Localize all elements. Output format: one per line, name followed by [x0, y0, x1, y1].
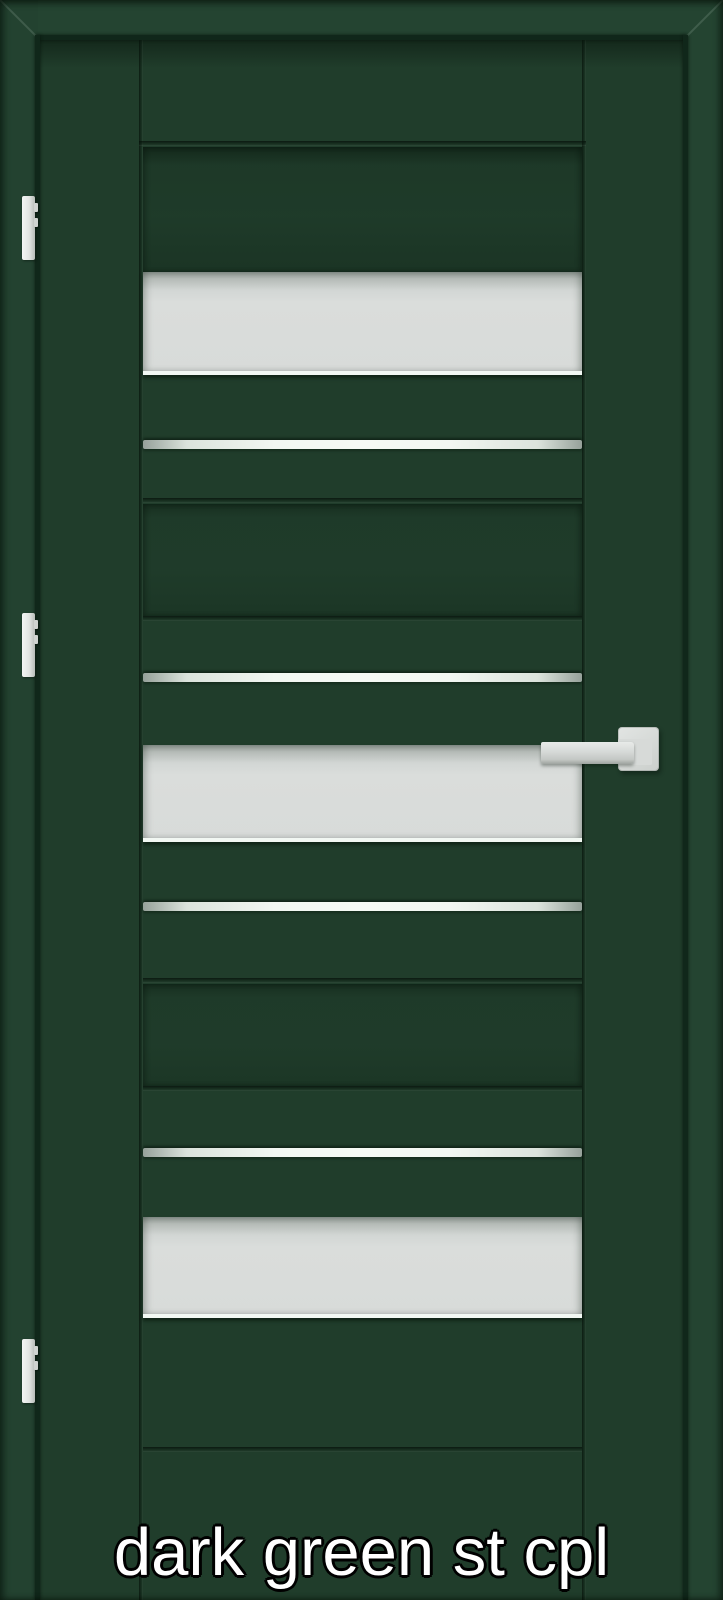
hinge-knuckle: [34, 218, 38, 227]
hinge-top: [22, 196, 35, 260]
door-frame-right: [685, 0, 723, 1600]
recessed-panel-top: [143, 147, 582, 272]
door-leaf: [40, 40, 684, 1600]
hinge-knuckle: [34, 203, 38, 212]
metal-strip-2: [143, 673, 582, 682]
recessed-panel-middle-upper: [143, 504, 582, 616]
frame-gap-right: [683, 35, 688, 1600]
hinge-middle: [22, 613, 35, 677]
frame-gap-top: [38, 35, 685, 40]
plank-groove: [143, 978, 582, 983]
stile-groove-right: [582, 40, 586, 1600]
plank-groove: [143, 1447, 582, 1452]
hinge-knuckle: [34, 620, 38, 629]
recessed-panel-middle-lower: [143, 984, 582, 1086]
hinge-knuckle: [34, 635, 38, 644]
plank-groove: [143, 1086, 582, 1091]
hinge-bottom: [22, 1339, 35, 1403]
glass-pane-bottom: [143, 1217, 582, 1318]
glass-pane-middle: [143, 745, 582, 842]
caption-text: dark green st cpl: [0, 1516, 723, 1590]
top-rail-groove: [139, 141, 586, 146]
glass-pane-top: [143, 272, 582, 375]
plank-groove: [143, 498, 582, 503]
plank-groove: [143, 616, 582, 621]
door-frame-top: [0, 0, 723, 38]
hinge-knuckle: [34, 1361, 38, 1370]
metal-strip-3: [143, 902, 582, 911]
door-handle-lever: [541, 742, 634, 764]
metal-strip-1: [143, 440, 582, 449]
metal-strip-4: [143, 1148, 582, 1157]
hinge-knuckle: [34, 1346, 38, 1355]
door-product-photo: dark green st cpl: [0, 0, 723, 1600]
